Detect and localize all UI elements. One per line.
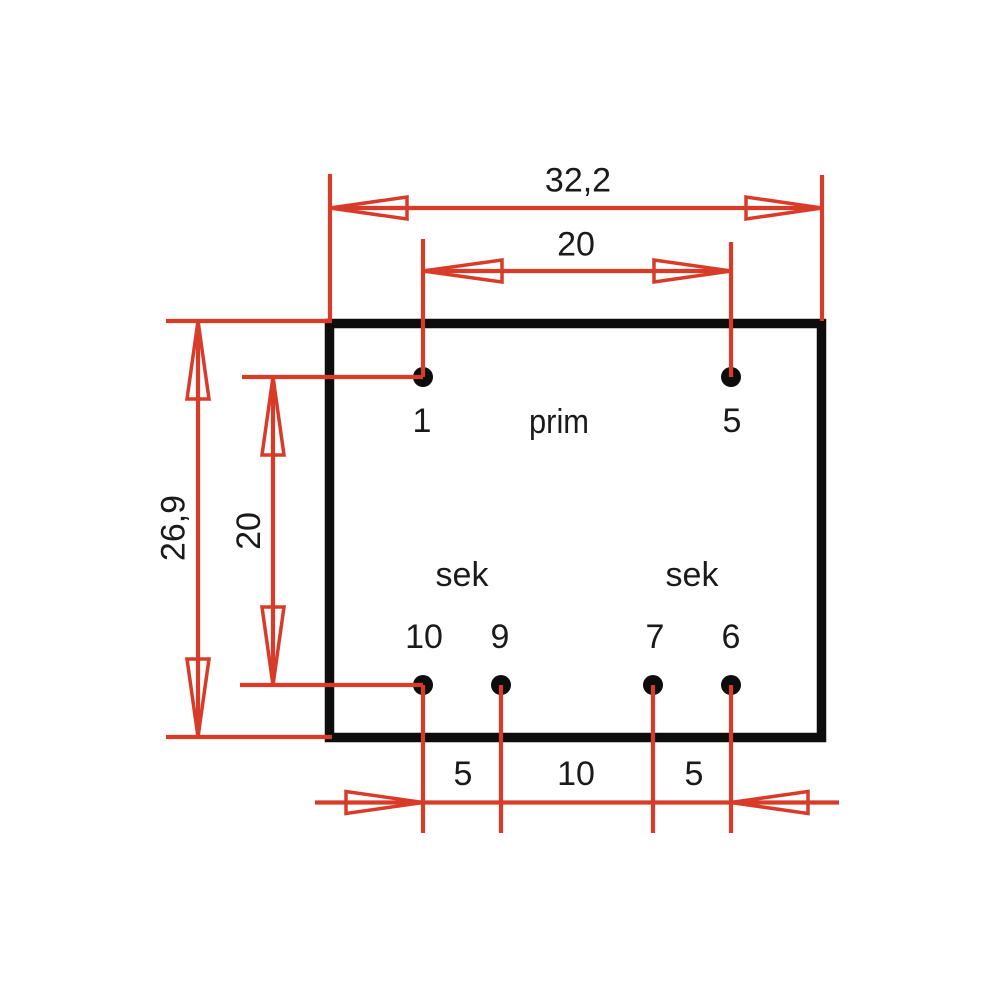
svg-text:32,2: 32,2: [545, 162, 611, 200]
svg-text:6: 6: [722, 618, 741, 656]
svg-text:sek: sek: [666, 556, 720, 594]
svg-text:9: 9: [491, 618, 510, 656]
svg-text:7: 7: [646, 618, 665, 656]
svg-text:1: 1: [413, 402, 432, 440]
svg-text:5: 5: [454, 755, 473, 793]
svg-text:5: 5: [685, 755, 704, 793]
svg-text:26,9: 26,9: [155, 495, 193, 561]
svg-text:sek: sek: [436, 556, 490, 594]
svg-text:10: 10: [405, 618, 443, 656]
svg-text:20: 20: [230, 512, 268, 550]
svg-text:prim: prim: [529, 403, 589, 441]
svg-text:10: 10: [557, 755, 595, 793]
svg-text:20: 20: [557, 226, 595, 264]
svg-text:5: 5: [723, 402, 742, 440]
